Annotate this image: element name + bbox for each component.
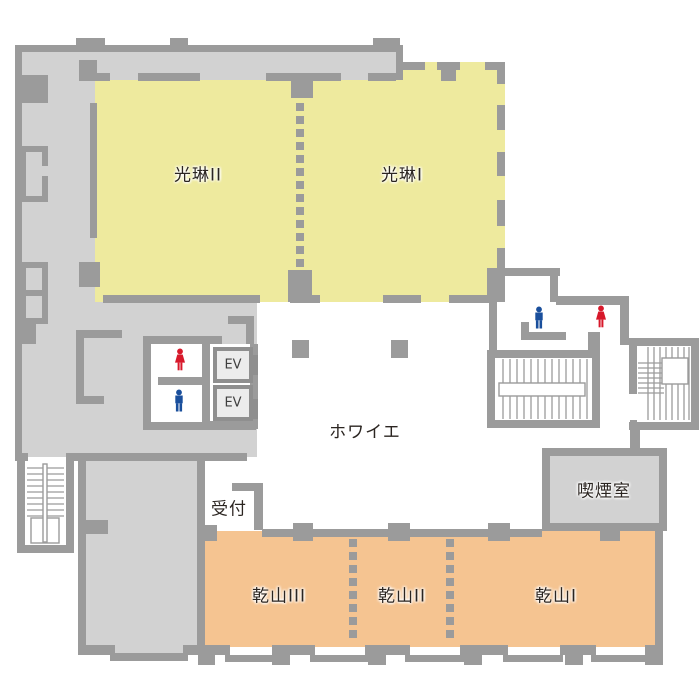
woman-icon [596,306,606,328]
room-label-smoking: 喫煙室 [577,477,631,502]
stairs-center [487,350,600,428]
room-label-kenzan1: 乾山I [535,582,577,607]
floor-plan: 光琳II 光琳I ホワイエ 受付 喫煙室 乾山III 乾山II 乾山I EV E… [0,0,700,700]
restroom-right [489,268,629,358]
room-label-kenzan3: 乾山III [252,582,306,607]
stairs-right [629,338,699,452]
room-label-korin2: 光琳II [174,161,222,186]
man-icon [535,307,542,329]
elevator-1-label: EV [224,358,241,373]
room-label-reception: 受付 [211,495,247,520]
room-label-kenzan2: 乾山II [378,582,426,607]
stairs-left [17,453,74,553]
floor-plan-drawing [0,0,700,700]
room-label-foyer: ホワイエ [329,418,401,443]
room-label-korin1: 光琳I [381,161,423,186]
elevator-2-label: EV [224,396,241,411]
back-room-area [78,453,205,655]
